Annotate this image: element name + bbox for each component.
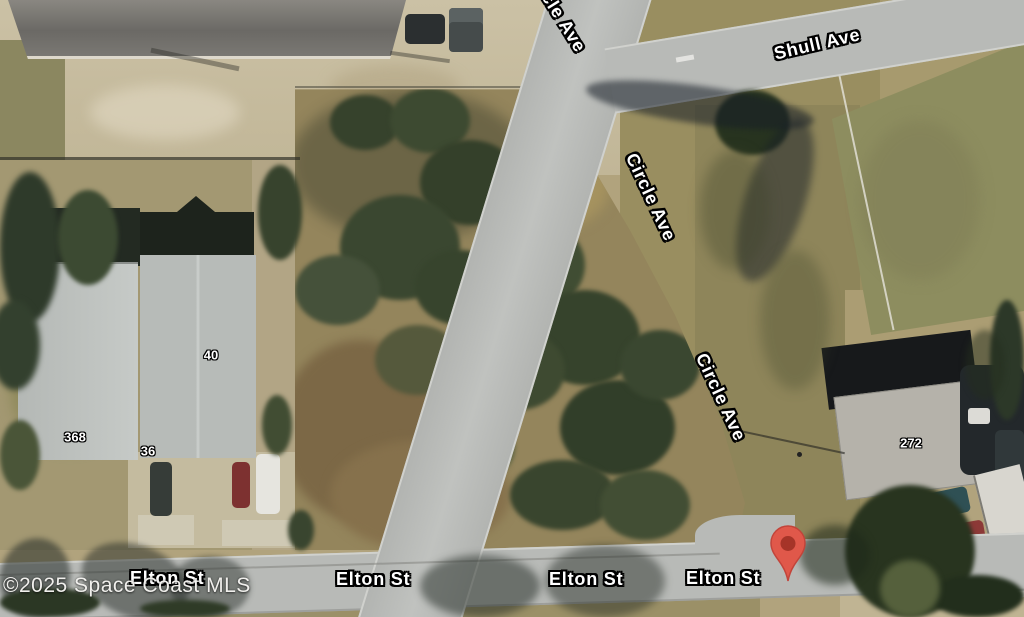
utility-pole <box>797 452 802 457</box>
white-object <box>968 408 990 424</box>
parked-van-white <box>256 454 280 514</box>
tree <box>0 172 60 322</box>
building-roof-top-left <box>8 0 406 59</box>
tree-shadow-over-road <box>800 525 870 585</box>
fence-line-left <box>0 157 300 160</box>
tree-highlight <box>880 560 940 617</box>
tree <box>258 165 302 260</box>
parked-car-red <box>232 462 250 508</box>
grass-mottle <box>700 150 770 270</box>
driveway-apron <box>138 515 194 545</box>
parked-car-dark <box>150 462 172 516</box>
truck <box>449 8 483 52</box>
tree-shadow <box>965 330 1005 400</box>
parcel-label-40: 40 <box>204 348 218 363</box>
bush <box>295 255 380 325</box>
street-label-elton-st-4: Elton St <box>686 568 760 589</box>
driveway-apron <box>222 520 292 546</box>
grass-mottle <box>760 250 830 390</box>
tree <box>58 190 118 285</box>
terrain-sand-highlight <box>90 85 240 140</box>
parcel-label-36: 36 <box>141 444 155 459</box>
tree <box>288 510 314 550</box>
street-label-elton-st-3: Elton St <box>549 569 623 590</box>
tree-canopy-bottom-right <box>930 575 1024 617</box>
parcel-label-368: 368 <box>64 430 86 445</box>
tree-canopy-bottom-left <box>140 600 230 617</box>
building-roof-40 <box>140 255 256 458</box>
parcel-label-272: 272 <box>900 436 922 451</box>
tree <box>262 395 292 455</box>
tree-shadow-over-road <box>420 555 540 617</box>
bush <box>600 470 690 540</box>
watermark-attribution: ©2025 Space Coast MLS <box>3 574 251 598</box>
tree <box>0 420 40 490</box>
bush <box>510 460 615 530</box>
street-label-elton-st-2: Elton St <box>336 569 410 590</box>
car <box>405 14 445 44</box>
satellite-map-canvas[interactable]: Circle Ave Circle Ave Circle Ave Shull A… <box>0 0 1024 617</box>
lot-boundary-line <box>295 86 550 88</box>
location-pin[interactable] <box>768 524 808 584</box>
location-pin-icon <box>768 524 808 584</box>
terrain-left-hedge <box>0 40 65 170</box>
